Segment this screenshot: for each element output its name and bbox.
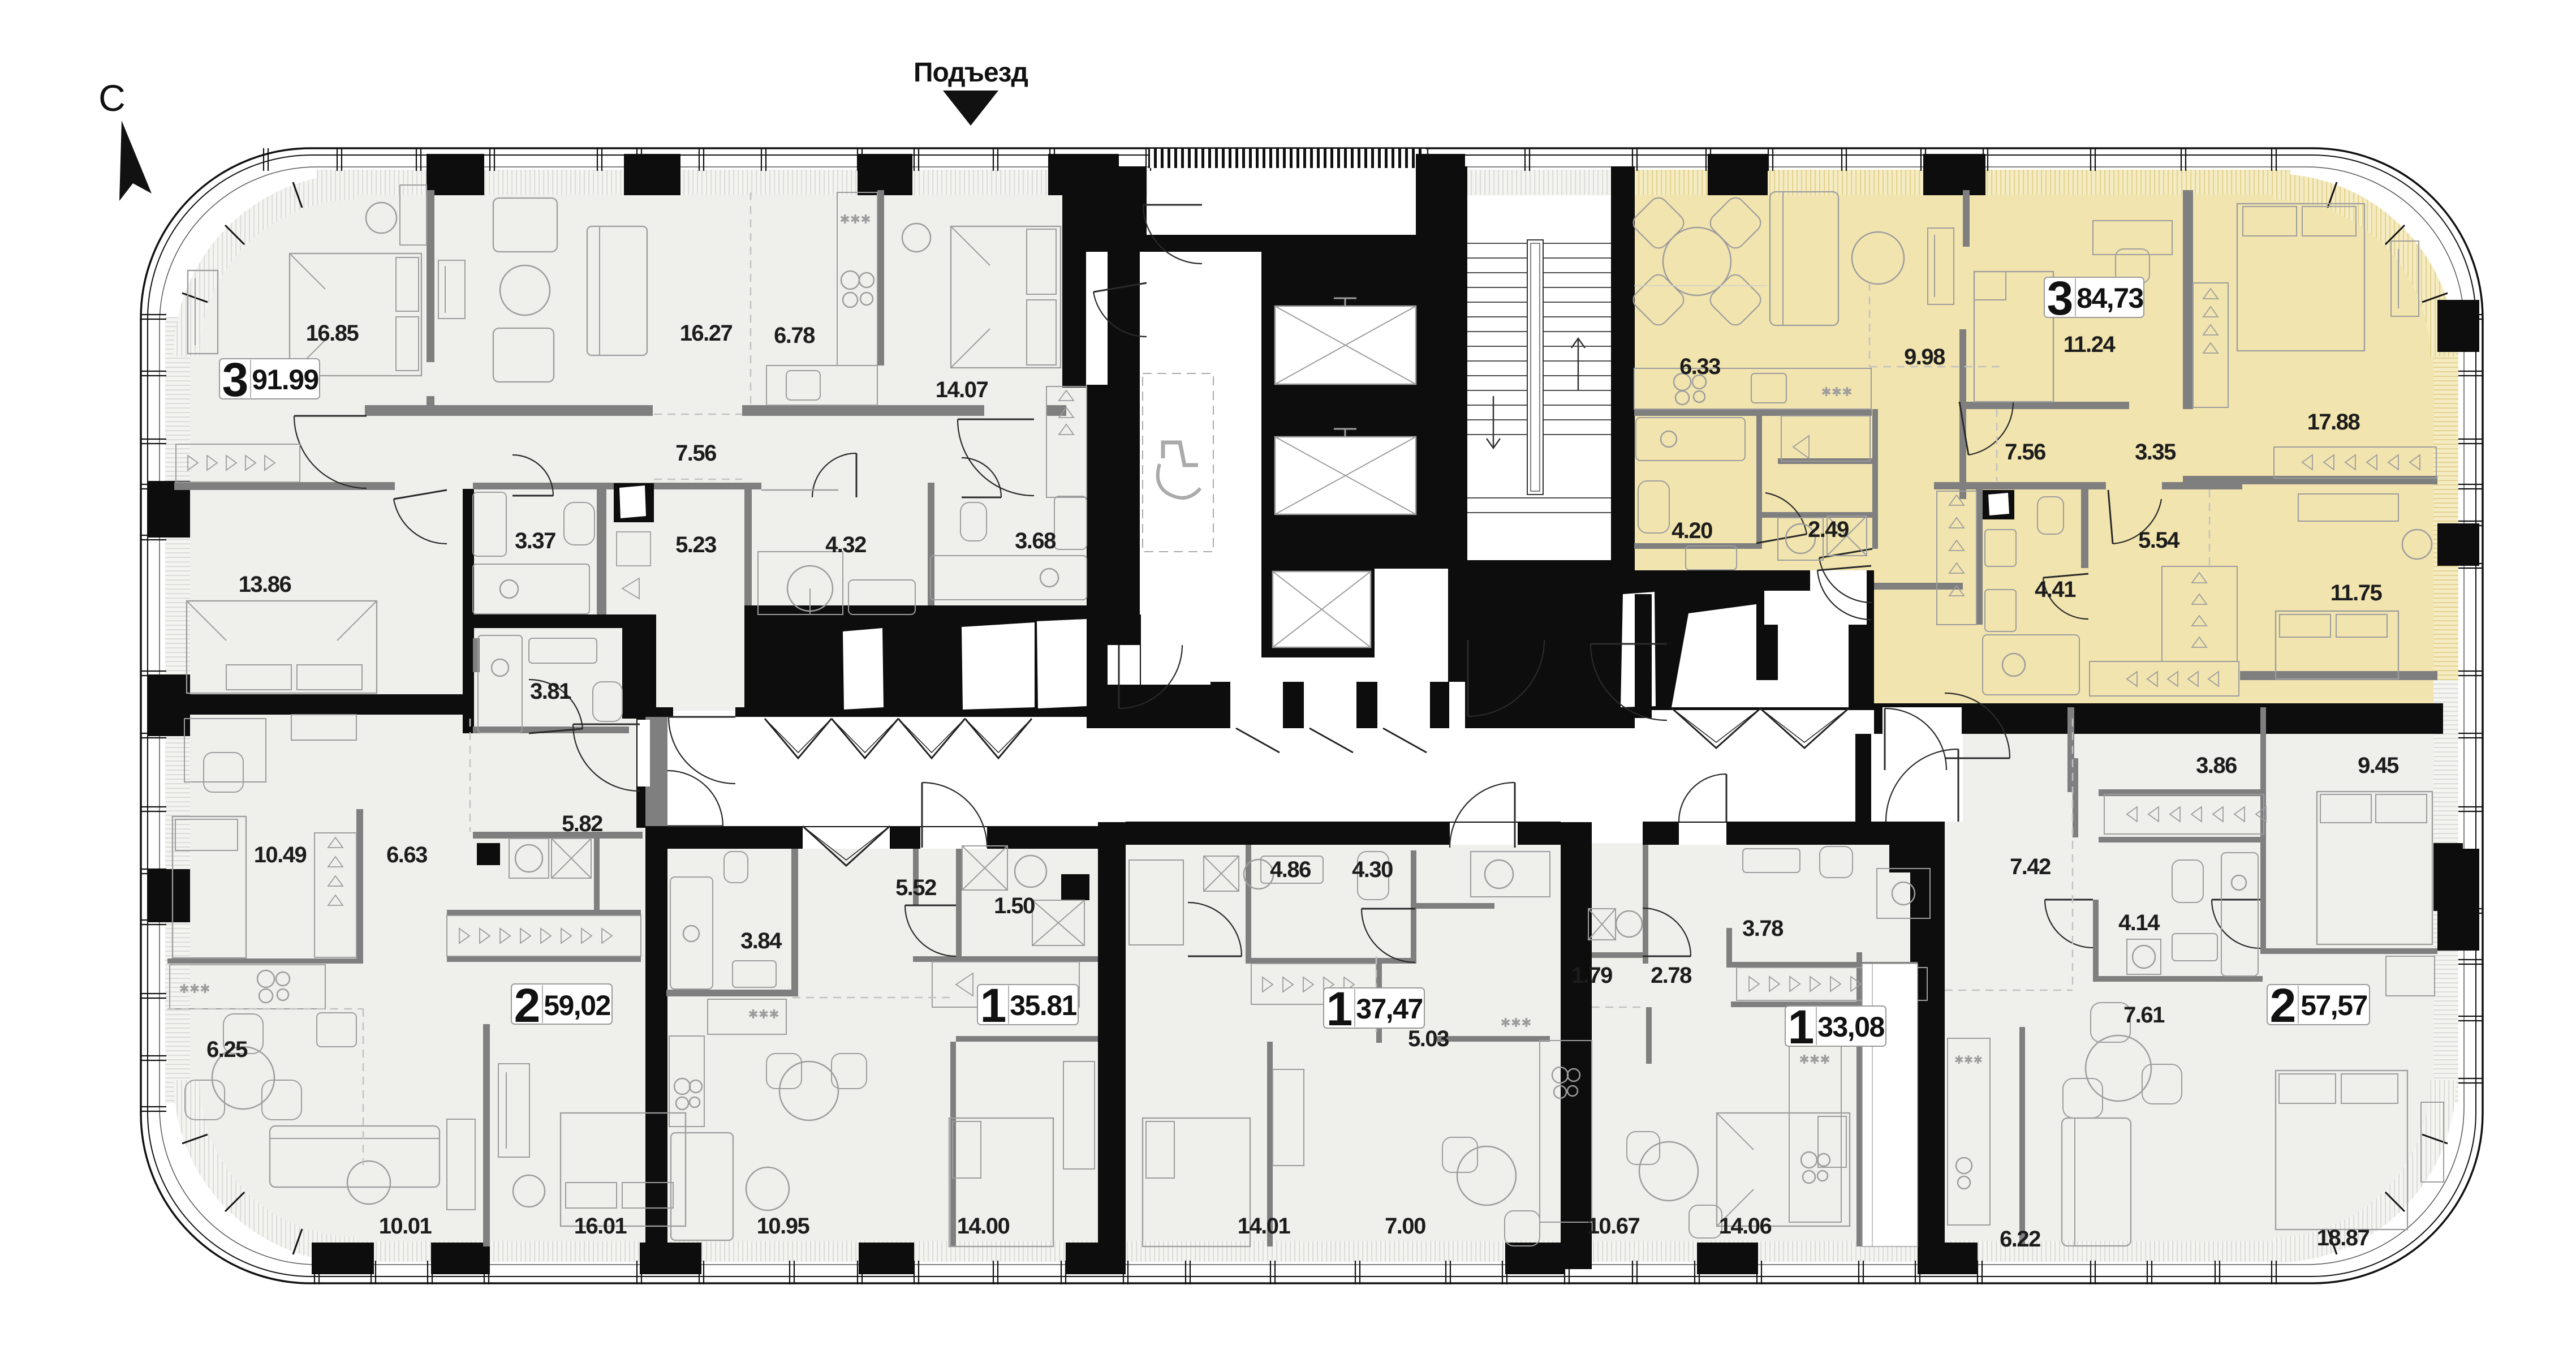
svg-text:1.50: 1.50 [994, 893, 1035, 918]
svg-text:3.37: 3.37 [515, 528, 555, 553]
svg-text:6.22: 6.22 [2000, 1227, 2040, 1252]
svg-text:✱✱✱: ✱✱✱ [1821, 385, 1852, 399]
svg-text:4.32: 4.32 [825, 532, 866, 557]
svg-text:57,57: 57,57 [2301, 990, 2367, 1021]
svg-text:14.00: 14.00 [957, 1214, 1010, 1239]
svg-text:1: 1 [980, 979, 1007, 1032]
svg-text:Подъезд: Подъезд [914, 58, 1028, 88]
svg-text:✱✱✱: ✱✱✱ [748, 1007, 779, 1021]
svg-text:✱✱✱: ✱✱✱ [1500, 1016, 1531, 1030]
svg-text:17.88: 17.88 [2307, 410, 2360, 435]
svg-text:10.49: 10.49 [254, 843, 307, 867]
svg-text:10.01: 10.01 [379, 1214, 432, 1239]
svg-text:18.87: 18.87 [2317, 1226, 2370, 1250]
svg-text:35.81: 35.81 [1010, 990, 1076, 1021]
svg-text:33,08: 33,08 [1817, 1011, 1884, 1043]
svg-text:9.98: 9.98 [1904, 345, 1945, 369]
svg-text:4.20: 4.20 [1672, 518, 1712, 543]
svg-text:37,47: 37,47 [1356, 993, 1423, 1025]
svg-text:✱✱✱: ✱✱✱ [1954, 1054, 1983, 1067]
svg-text:4.14: 4.14 [2118, 910, 2160, 935]
svg-text:16.01: 16.01 [574, 1214, 627, 1239]
svg-text:1: 1 [1788, 1000, 1815, 1054]
svg-text:2: 2 [2270, 979, 2297, 1032]
svg-text:✱✱✱: ✱✱✱ [179, 982, 210, 996]
svg-text:5.23: 5.23 [675, 532, 716, 557]
svg-text:84,73: 84,73 [2077, 282, 2143, 314]
svg-text:59,02: 59,02 [544, 990, 610, 1021]
svg-text:✱✱✱: ✱✱✱ [839, 212, 871, 226]
svg-text:3: 3 [2047, 272, 2074, 325]
svg-text:6.63: 6.63 [386, 843, 427, 867]
svg-text:2: 2 [514, 979, 541, 1032]
svg-text:6.33: 6.33 [1679, 354, 1720, 379]
svg-text:7.56: 7.56 [2005, 440, 2045, 465]
svg-text:6.78: 6.78 [774, 323, 815, 348]
svg-text:16.27: 16.27 [680, 321, 733, 346]
svg-text:✱✱✱: ✱✱✱ [1799, 1052, 1830, 1067]
svg-text:4.30: 4.30 [1352, 857, 1393, 882]
svg-text:91.99: 91.99 [252, 364, 318, 396]
svg-text:4.86: 4.86 [1270, 857, 1311, 882]
svg-text:3.35: 3.35 [2135, 440, 2176, 465]
svg-text:4.41: 4.41 [2035, 577, 2076, 602]
svg-text:7.61: 7.61 [2123, 1003, 2165, 1028]
svg-text:11.75: 11.75 [2331, 581, 2383, 605]
svg-text:1: 1 [1326, 982, 1353, 1035]
svg-text:7.00: 7.00 [1385, 1214, 1425, 1239]
svg-text:2.49: 2.49 [1808, 517, 1849, 542]
svg-text:3: 3 [222, 353, 249, 406]
svg-text:3.86: 3.86 [2196, 753, 2237, 778]
svg-text:7.56: 7.56 [675, 441, 716, 466]
svg-text:14.01: 14.01 [1238, 1214, 1291, 1239]
svg-text:7.42: 7.42 [2010, 854, 2051, 879]
svg-text:5.52: 5.52 [895, 875, 936, 900]
svg-text:3.68: 3.68 [1015, 528, 1056, 553]
svg-text:14.07: 14.07 [936, 377, 988, 402]
svg-text:3.84: 3.84 [740, 929, 782, 953]
svg-text:2.78: 2.78 [1651, 963, 1692, 988]
svg-text:3.81: 3.81 [530, 679, 571, 704]
svg-text:3.78: 3.78 [1742, 916, 1784, 941]
svg-text:10.67: 10.67 [1587, 1214, 1640, 1239]
svg-text:14.06: 14.06 [1719, 1214, 1772, 1239]
svg-text:10.95: 10.95 [757, 1214, 810, 1239]
svg-text:5.54: 5.54 [2138, 528, 2180, 553]
svg-text:11.24: 11.24 [2064, 332, 2116, 357]
svg-text:5.82: 5.82 [562, 811, 602, 836]
svg-text:13.86: 13.86 [239, 572, 291, 597]
svg-text:5.03: 5.03 [1408, 1026, 1449, 1051]
svg-text:9.45: 9.45 [2358, 753, 2399, 778]
svg-text:6.25: 6.25 [206, 1037, 248, 1062]
svg-text:1.79: 1.79 [1571, 963, 1612, 988]
svg-text:C: C [98, 77, 126, 119]
svg-text:16.85: 16.85 [306, 321, 359, 346]
